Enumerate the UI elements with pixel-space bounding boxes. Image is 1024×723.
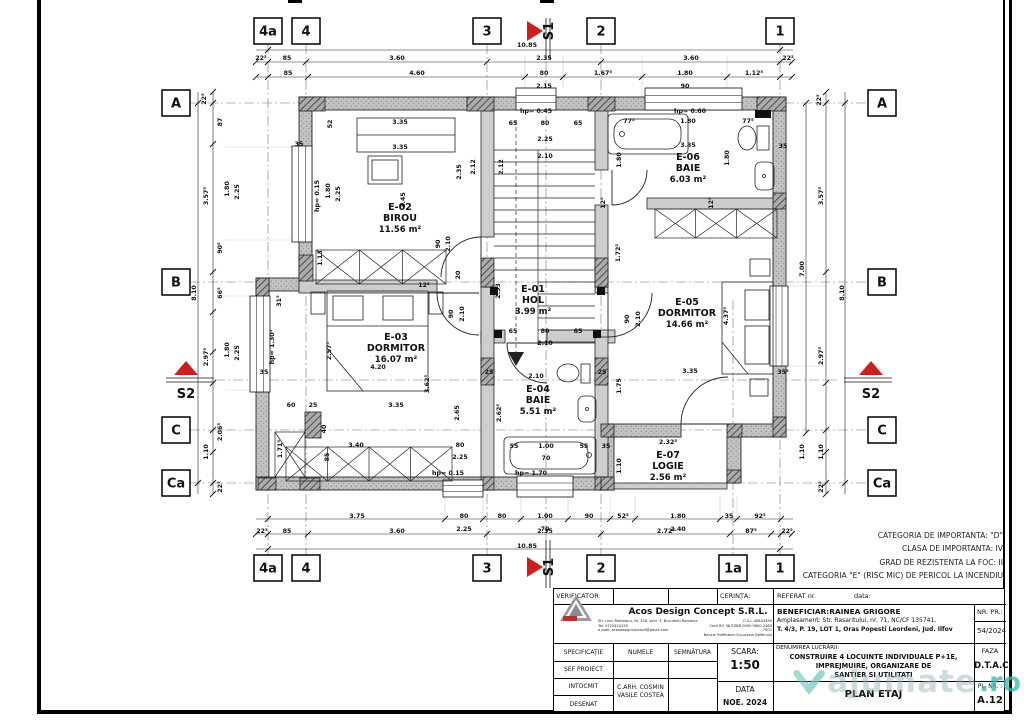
door-e06 xyxy=(612,170,647,205)
dimension-label: 1.67⁵ xyxy=(594,70,613,77)
dimension-label: 2.65 xyxy=(454,405,461,421)
wall-pier xyxy=(300,478,320,490)
dimension-label: 10.85 xyxy=(517,543,537,550)
dimension-label: 1.80 xyxy=(224,181,231,197)
referat-label: REFERAT nr. xyxy=(777,592,816,600)
grid-bubble: A xyxy=(868,90,896,116)
grid-bubble: 4 xyxy=(292,18,320,44)
bathtub-e06 xyxy=(608,114,688,154)
dimension-label: 1.80 xyxy=(224,342,231,358)
dimension-label: 2.25 xyxy=(234,184,241,200)
dimension-label: 4.37⁵ xyxy=(723,307,730,326)
dimension-label: 3.75 xyxy=(349,513,365,520)
dimension-label: 1.75 xyxy=(616,378,623,394)
company-iban: Cont RO 36 RZBR 0000 0600 2483 7901 xyxy=(700,624,772,633)
dimension-label: 2.35 xyxy=(536,55,552,62)
dimension-label: 55 xyxy=(580,443,589,450)
scara-label: SCARA: xyxy=(717,647,773,656)
faza-value: D.T.A.C. xyxy=(974,661,1006,671)
grid-bubble: C xyxy=(162,417,190,443)
dimension-label: 2.15 xyxy=(536,83,552,90)
dimension-label: 2.12 xyxy=(498,159,505,175)
window xyxy=(292,146,312,242)
wall-mark-e06 xyxy=(755,110,771,118)
room-label: E-06BAIE6.03 m² xyxy=(670,152,707,185)
dimension-label: hp= 0.15 xyxy=(432,470,464,477)
section-label: S2 xyxy=(177,387,195,402)
dimension-label: 40 xyxy=(321,424,328,433)
nr-pr-label: NR. PR.: xyxy=(977,608,1003,616)
dimension-label: 1.80 xyxy=(677,70,693,77)
note-line: GRAD DE REZISTENTA LA FOC: II xyxy=(690,556,1003,569)
wall-pier xyxy=(727,470,741,483)
dimension-label: 80 xyxy=(540,70,549,77)
dimension-label: 22⁵ xyxy=(217,481,224,493)
grid-bubble: 1 xyxy=(766,18,794,44)
svg-text:2: 2 xyxy=(596,25,605,40)
dimension-label: 3.57⁵ xyxy=(203,187,210,206)
pl-nr-label: PL. NR. : xyxy=(974,684,1006,690)
dimension-label: 3.35 xyxy=(682,368,698,375)
svg-text:4a: 4a xyxy=(259,25,277,40)
window xyxy=(645,88,742,110)
dimension-label: 2.57⁵ xyxy=(326,342,333,361)
note-line: CATEGORIA DE IMPORTANTA: "D" xyxy=(690,529,1003,542)
desenat-label: DESENAT xyxy=(554,701,613,708)
specificatie-label: SPECIFICAȚIE xyxy=(554,649,613,656)
dimension-label: 2.97⁵ xyxy=(818,347,825,366)
wardrobe xyxy=(316,250,446,284)
grid-bubble: A xyxy=(162,90,190,116)
exterior-wall xyxy=(773,110,786,437)
dimension-label: hp= 0.60 xyxy=(674,108,707,115)
section-s2-right xyxy=(844,361,892,382)
door-logie xyxy=(681,377,728,424)
dimension-label: 1.71⁵ xyxy=(277,440,284,459)
dimension-label: 65 xyxy=(509,328,518,335)
grid-bubble: 4 xyxy=(292,555,320,581)
svg-text:3.99 m²: 3.99 m² xyxy=(515,307,552,317)
dimension-label: 85 xyxy=(283,55,292,62)
wall-pier xyxy=(299,97,325,111)
grid-bubble: 4a xyxy=(254,555,282,581)
dimension-label: 3.35 xyxy=(392,144,408,151)
company-logo xyxy=(559,594,593,622)
svg-text:16.07 m²: 16.07 m² xyxy=(375,355,418,365)
dimension-label: hp= 0.45 xyxy=(520,108,552,115)
dimension-label: 22⁵ xyxy=(782,55,794,62)
dimension-label: 2.35 xyxy=(456,164,463,180)
dimension-label: 22⁵ xyxy=(816,94,823,106)
svg-text:5.51 m²: 5.51 m² xyxy=(520,407,557,417)
dimension-label: hp= 0.15 xyxy=(314,180,321,212)
dimension-label: 80 xyxy=(460,513,469,520)
svg-text:BIROU: BIROU xyxy=(383,213,417,224)
dimension-label: 35 xyxy=(295,141,304,148)
dimension-label: 2.97⁵ xyxy=(203,348,210,367)
dimension-label: 65 xyxy=(574,328,583,335)
dimension-label: 3.62⁵ xyxy=(424,375,431,394)
wall-pier xyxy=(757,97,786,111)
note-line: CLASA DE IMPORTANTA: IV xyxy=(690,542,1003,555)
svg-text:LOGIE: LOGIE xyxy=(652,461,684,472)
dimension-label: 87 xyxy=(217,118,224,127)
dimension-label: 60 xyxy=(287,402,296,409)
svg-text:11.56 m²: 11.56 m² xyxy=(379,225,422,235)
window xyxy=(443,480,483,497)
toilet-e04 xyxy=(557,364,590,383)
svg-text:4a: 4a xyxy=(259,562,277,577)
svg-text:E-03: E-03 xyxy=(384,332,408,343)
dimension-label: 80 xyxy=(541,120,550,127)
svg-text:E-07: E-07 xyxy=(656,450,680,461)
svg-text:4: 4 xyxy=(301,562,310,577)
room-label: E-02BIROU11.56 m² xyxy=(379,202,422,235)
window xyxy=(517,476,573,497)
svg-text:C: C xyxy=(171,424,181,439)
data-value: NOE. 2024 xyxy=(717,698,773,707)
dimension-label: 2.06⁵ xyxy=(217,423,224,442)
drawing-sheet: 4a43214a4321a1ABCCaABCCa 10.8522⁵853.602… xyxy=(0,0,1024,723)
section-label: S1 xyxy=(542,22,557,40)
dimension-label: 2.25 xyxy=(456,526,472,533)
room-label: E-05DORMITOR14.66 m² xyxy=(658,297,717,330)
dimension-label: 2.10 xyxy=(459,306,466,322)
dimension-label: 90 xyxy=(585,513,594,520)
room-label: E-03DORMITOR16.07 m² xyxy=(367,332,426,365)
grid-bubble: 3 xyxy=(473,18,501,44)
note-line: CATEGORIA "E" (RISC MIC) DE PERICOL LA I… xyxy=(690,569,1003,582)
dimension-label: 7.00 xyxy=(799,261,806,277)
dimension-label: 92⁵ xyxy=(754,513,766,520)
dimension-label: 12⁵ xyxy=(418,282,430,289)
svg-text:E-04: E-04 xyxy=(526,384,550,395)
dimension-label: 2.32⁵ xyxy=(659,439,678,446)
wall-pier xyxy=(773,417,786,437)
dimension-label: 90 xyxy=(435,239,442,248)
data-label: DATA xyxy=(717,685,773,694)
dimension-label: 3.35 xyxy=(680,142,696,149)
dimension-label: 1.80 xyxy=(670,513,686,520)
wall-pier xyxy=(258,478,276,490)
dimension-label: 25 xyxy=(485,369,494,376)
dimension-label: 77⁵ xyxy=(742,118,754,125)
dimension-label: 2.25 xyxy=(234,345,241,361)
sink-e04 xyxy=(578,396,596,422)
grid-bubble: C xyxy=(868,417,896,443)
dimension-label: 80 xyxy=(498,513,507,520)
dimension-label: hp= 1.70 xyxy=(515,470,548,477)
dimension-label: 65 xyxy=(509,120,518,127)
svg-text:14.66 m²: 14.66 m² xyxy=(666,320,709,330)
toilet-e06 xyxy=(738,126,769,150)
dimension-label: 52 xyxy=(327,120,334,129)
dimension-label: 22⁵ xyxy=(201,93,208,105)
wall-pier xyxy=(595,258,608,287)
interior-wall xyxy=(481,110,494,237)
intocmit-label: INTOCMIT xyxy=(554,683,613,690)
dimension-label: 1.13 xyxy=(317,250,324,266)
svg-text:A: A xyxy=(171,97,181,112)
wall-pier xyxy=(601,424,614,437)
dimension-label: 85 xyxy=(324,453,331,462)
faza-label: FAZA xyxy=(974,647,1006,655)
interior-wall xyxy=(614,483,727,489)
amplasament-line2: T. 4/3, P. 19, LOT 1, Oras Popesti Leord… xyxy=(777,626,972,633)
chair-e02 xyxy=(368,156,402,184)
svg-text:Ca: Ca xyxy=(873,477,891,492)
plansa-title: PLAN ETAJ xyxy=(773,689,974,700)
svg-text:A: A xyxy=(877,97,887,112)
title-block: VERIFICATOR CERINȚA: REFERAT nr. data: A… xyxy=(553,588,1005,712)
dimension-label: 1.80 xyxy=(724,150,731,166)
dimension-label: 10.85 xyxy=(517,42,537,49)
dimension-label: 3.60 xyxy=(389,528,405,535)
company-name: Acos Design Concept S.R.L. xyxy=(624,607,772,617)
grid-bubble: 2 xyxy=(587,555,615,581)
dimension-label: 22⁵ xyxy=(818,481,825,493)
semnatura-label: SEMNĂTURA xyxy=(668,649,717,656)
bed-e05 xyxy=(722,259,773,396)
denumire-line1: CONSTRUIRE 4 LOCUINTE INDIVIDUALE P+1E, xyxy=(773,653,974,661)
importance-notes: CATEGORIA DE IMPORTANTA: "D" CLASA DE IM… xyxy=(690,529,1003,583)
svg-text:1: 1 xyxy=(775,25,784,40)
sink-e06 xyxy=(755,162,774,190)
dimension-label: 35 xyxy=(725,513,734,520)
wardrobe xyxy=(286,447,452,481)
dimension-label: 2.53 xyxy=(495,283,502,299)
dimension-label: 1.10 xyxy=(203,444,210,460)
dimension-label: 3.35 xyxy=(392,119,408,126)
dimension-label: 20 xyxy=(455,270,462,279)
grid-bubble: Ca xyxy=(868,470,896,496)
dimension-label: 90 xyxy=(624,314,631,323)
dimension-label: 85 xyxy=(284,70,293,77)
company-address: Str. Liviu Rebreanu, Nr. 328, sect. 3, B… xyxy=(598,619,698,624)
denumire-line3: SANTIER SI UTILITATI xyxy=(773,671,974,679)
dimension-label: 25 xyxy=(598,369,607,376)
dimension-label: 65 xyxy=(574,120,583,127)
wall-pier xyxy=(467,97,494,111)
dimension-label: 1.12⁵ xyxy=(745,70,764,77)
svg-text:Ca: Ca xyxy=(167,477,185,492)
dimension-label: 1.00 xyxy=(538,443,554,450)
dimension-label: 1.80 xyxy=(680,118,696,125)
dimension-labels: 10.8522⁵853.602.353.6022⁵854.60801.67⁵1.… xyxy=(191,42,846,550)
svg-text:BAIE: BAIE xyxy=(676,163,701,174)
dimension-label: 12⁵ xyxy=(600,197,607,209)
grid-bubble: 2 xyxy=(587,18,615,44)
data-word: data: xyxy=(854,592,871,600)
svg-text:3: 3 xyxy=(482,562,491,577)
company-email: e-mail: acosdesignconcept@gmail.com xyxy=(598,628,698,633)
section-label: S1 xyxy=(542,558,557,576)
grid-bubble: B xyxy=(868,269,896,295)
dimension-label: 2.10 xyxy=(635,311,642,327)
cerinta-label: CERINȚA: xyxy=(720,592,750,600)
dimension-label: 2.72⁵ xyxy=(657,528,676,535)
author-name-line2: VASILE COSTEA xyxy=(613,692,668,699)
dimension-label: 70 xyxy=(542,455,551,462)
dimension-label: 1.72⁵ xyxy=(615,244,622,263)
svg-text:E-06: E-06 xyxy=(676,152,700,163)
svg-text:E-02: E-02 xyxy=(388,202,412,213)
dimension-label: 1.10 xyxy=(616,458,623,474)
svg-text:B: B xyxy=(877,276,887,291)
cabinet-block-e03 xyxy=(305,412,321,438)
dimension-label: 4.60 xyxy=(409,70,425,77)
svg-text:BAIE: BAIE xyxy=(526,395,551,406)
dimension-label: 1.00 xyxy=(537,513,553,520)
dimension-label: 8.10 xyxy=(191,285,198,301)
dimension-label: 3.60 xyxy=(389,55,405,62)
dimension-label: 2.12 xyxy=(470,159,477,175)
window xyxy=(516,88,556,110)
dimension-label: 90 xyxy=(448,309,455,318)
interior-wall xyxy=(595,110,608,170)
wardrobes xyxy=(275,209,777,481)
wardrobe xyxy=(655,209,777,238)
dimension-label: 3.60 xyxy=(683,55,699,62)
svg-text:DORMITOR: DORMITOR xyxy=(658,308,717,319)
dimension-label: 77⁵ xyxy=(623,118,635,125)
dimension-label: 2.62⁵ xyxy=(496,404,503,423)
amplasament-line1: Amplasament: Str. Rasaritului, nr. 71, N… xyxy=(777,617,972,624)
dimension-label: 35⁵ xyxy=(777,369,789,376)
dimension-label: 12⁵ xyxy=(708,197,715,209)
company-bank: Banca: Raiffeisen-Sucursala Delfinului xyxy=(700,633,772,638)
dimension-label: 22⁵ xyxy=(256,528,268,535)
scara-value: 1:50 xyxy=(717,658,773,672)
svg-text:DORMITOR: DORMITOR xyxy=(367,343,426,354)
dimension-label: 80 xyxy=(456,442,465,449)
dimension-label: 2.10 xyxy=(528,373,544,380)
denumire-label: DENUMIREA LUCRĂRII: xyxy=(776,645,839,651)
wall-pier xyxy=(727,424,742,437)
dimension-label: 2.25 xyxy=(452,454,468,461)
dimension-label: 2.35 xyxy=(537,528,553,535)
grid-bubble: 3 xyxy=(473,555,501,581)
nr-pr-value: 54/2024 xyxy=(977,627,1006,635)
svg-text:C: C xyxy=(877,424,887,439)
dimension-label: 35 xyxy=(260,369,269,376)
svg-text:4: 4 xyxy=(301,25,310,40)
room-label: E-07LOGIE2.56 m² xyxy=(650,450,687,483)
svg-text:E-01: E-01 xyxy=(521,284,545,295)
dimension-label: 3.57⁵ xyxy=(818,187,825,206)
author-name-line1: C.ARH. COSMIN xyxy=(613,684,668,691)
denumire-line2: IMPREJMUIRE, ORGANIZARE DE xyxy=(773,662,974,670)
dimension-label: 52⁵ xyxy=(617,513,629,520)
dimension-label: 35 xyxy=(779,143,788,150)
dimension-label: 1.10 xyxy=(799,444,806,460)
dimension-label: 2.10 xyxy=(445,236,452,252)
dimension-label: 1.80 xyxy=(325,183,332,199)
grid-bubble: Ca xyxy=(162,470,190,496)
dimension-label: 66⁵ xyxy=(217,287,224,299)
svg-text:B: B xyxy=(171,276,181,291)
dimension-label: 2.25 xyxy=(335,186,342,202)
dimension-label: 1.80 xyxy=(616,152,623,168)
dimension-label: hp= 1.30⁵ xyxy=(269,329,276,364)
dimension-label: 35 xyxy=(602,443,611,450)
svg-text:2: 2 xyxy=(596,562,605,577)
dimension-label: 2.10 xyxy=(537,340,553,347)
window xyxy=(250,296,270,392)
sef-proiect-label: ȘEF PROIECT xyxy=(554,666,613,673)
wall-pier xyxy=(601,477,614,490)
wall-pier xyxy=(588,97,615,111)
dimension-label: 90⁵ xyxy=(217,242,224,254)
grid-bubble: 4a xyxy=(254,18,282,44)
dimension-label: 2.25 xyxy=(537,136,553,143)
dimension-label: 3.35 xyxy=(388,402,404,409)
room-label: E-04BAIE5.51 m² xyxy=(520,384,557,417)
dimension-label: 2.10 xyxy=(537,153,553,160)
wall-pier xyxy=(481,258,494,287)
dimension-label: 80 xyxy=(541,328,550,335)
wall-pier xyxy=(299,255,313,281)
svg-text:HOL: HOL xyxy=(522,295,544,306)
wall-pier xyxy=(773,193,786,209)
dimension-label: 90 xyxy=(681,83,690,90)
dimension-label: 85 xyxy=(283,528,292,535)
dimension-label: 3.40 xyxy=(348,442,364,449)
dimension-label: 1.10 xyxy=(818,444,825,460)
beneficiar: BENEFICIAR:RAINEA GRIGORE xyxy=(777,607,972,616)
dimension-label: 55 xyxy=(510,443,519,450)
numele-label: NUMELE xyxy=(613,649,668,656)
svg-text:E-05: E-05 xyxy=(675,297,699,308)
svg-text:2.56 m²: 2.56 m² xyxy=(650,473,687,483)
pl-nr-value: A.12 xyxy=(974,695,1006,706)
dimension-label: 25 xyxy=(309,402,318,409)
svg-text:6.03 m²: 6.03 m² xyxy=(670,175,707,185)
section-label: S2 xyxy=(862,387,880,402)
dimension-label: 22⁵ xyxy=(255,55,267,62)
dimension-label: 4.20 xyxy=(370,364,386,371)
grid-bubble: B xyxy=(162,269,190,295)
svg-text:3: 3 xyxy=(482,25,491,40)
dimension-label: 31⁵ xyxy=(276,295,283,307)
dimension-label: 8.10 xyxy=(839,285,846,301)
